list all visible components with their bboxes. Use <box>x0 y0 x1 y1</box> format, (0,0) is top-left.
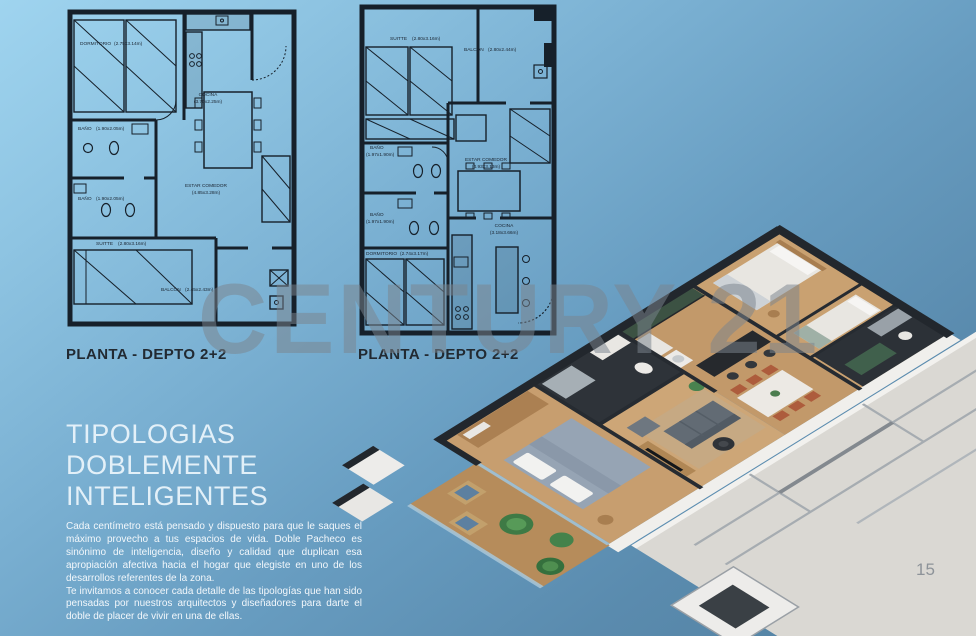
room-label: BAÑO <box>370 144 384 151</box>
room-dims: (1.90x2.05m) <box>96 126 125 132</box>
room-label: BAÑO <box>78 195 92 202</box>
room-label: BALCÓN <box>161 286 181 293</box>
room-dims: (2.80x3.16m) <box>412 36 441 42</box>
page-number: 15 <box>916 560 935 580</box>
room-dims: (2.80x3.16m) <box>118 241 147 247</box>
room-dims: (2.75x3.14m) <box>114 41 143 47</box>
apartment-3d-render <box>380 195 976 636</box>
room-label: ESTAR COMEDOR <box>465 157 508 163</box>
page-title-line2: DOBLEMENTE INTELIGENTES <box>66 450 362 512</box>
room-dims: (4.93x3.13m) <box>472 164 501 170</box>
century21-watermark: CENTURY 21 <box>198 271 820 370</box>
room-label: BAÑO <box>78 125 92 132</box>
room-dims: (1.97x1.90m) <box>366 152 395 158</box>
floorplan-left-labels: DORMITORIO (2.75x3.14m) COCINA (3.70x2.2… <box>78 41 228 293</box>
room-label: COCINA <box>199 92 218 98</box>
floorplan-right-dark-blocks <box>534 7 554 67</box>
room-label: SUITTE <box>390 36 407 42</box>
room-label: BALCÓN <box>464 46 484 53</box>
room-label: DORMITORIO <box>80 41 111 47</box>
intro-paragraph-1: Cada centímetro está pensado y dispuesto… <box>66 521 362 586</box>
room-label: SUITTE <box>96 241 113 247</box>
page-title-line1: TIPOLOGIAS <box>66 419 362 450</box>
brochure-page: DORMITORIO (2.75x3.14m) COCINA (3.70x2.2… <box>0 0 976 636</box>
intro-section: TIPOLOGIAS DOBLEMENTE INTELIGENTES Cada … <box>66 419 362 624</box>
room-dims: (2.80x2.44m) <box>488 47 517 53</box>
room-dims: (4.85x3.28m) <box>192 190 221 196</box>
room-label: ESTAR COMEDOR <box>185 183 228 189</box>
room-dims: (3.70x2.25m) <box>194 99 223 105</box>
intro-paragraph-2: Te invitamos a conocer cada detalle de l… <box>66 586 362 625</box>
room-dims: (1.90x2.05m) <box>96 196 125 202</box>
